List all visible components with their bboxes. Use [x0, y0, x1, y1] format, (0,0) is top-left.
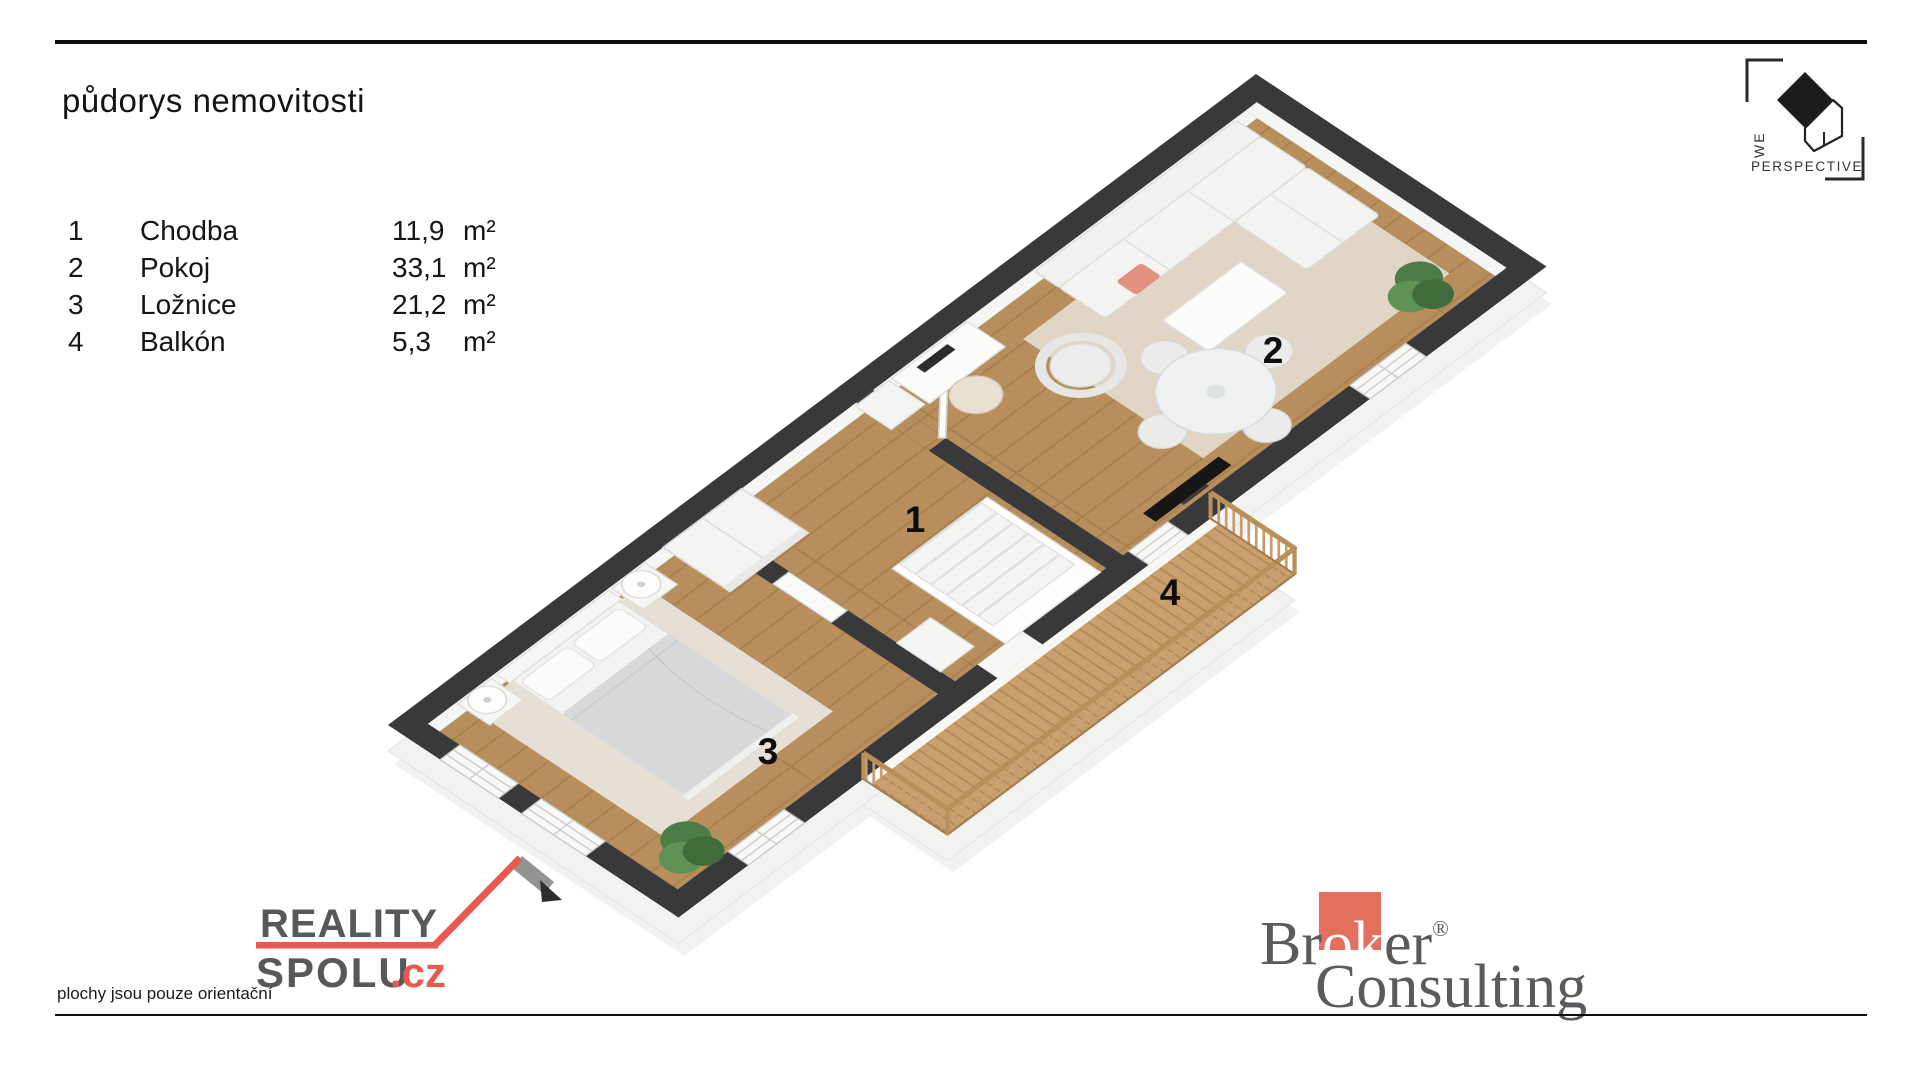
corner-bracket-top-left	[1747, 60, 1783, 102]
room-label-3: 3	[758, 731, 779, 773]
reality-text: REALITY	[260, 902, 438, 946]
room-label-1: 1	[905, 499, 926, 541]
house-icon	[1777, 72, 1842, 151]
realityspolu-logo: REALITY SPOLU .cz	[248, 850, 588, 1005]
cz-text: .cz	[390, 949, 446, 996]
room-label-2: 2	[1263, 330, 1284, 372]
disclaimer-text: plochy jsou pouze orientační	[57, 984, 272, 1004]
registered-mark: ®	[1432, 916, 1449, 941]
weperspective-we-text: WE	[1751, 131, 1767, 158]
weperspective-logo: WE PERSPECTIVE	[1728, 40, 1903, 185]
broker-br: Br	[1260, 910, 1322, 978]
weperspective-perspective-text: PERSPECTIVE	[1751, 159, 1863, 174]
room-label-4: 4	[1160, 572, 1181, 614]
spolu-text: SPOLU	[256, 949, 411, 996]
broker-line2: Consulting	[1315, 956, 1587, 1018]
bottom-rule	[55, 1014, 1867, 1016]
broker-consulting-logo: Broker® Consulting	[1255, 868, 1695, 1018]
